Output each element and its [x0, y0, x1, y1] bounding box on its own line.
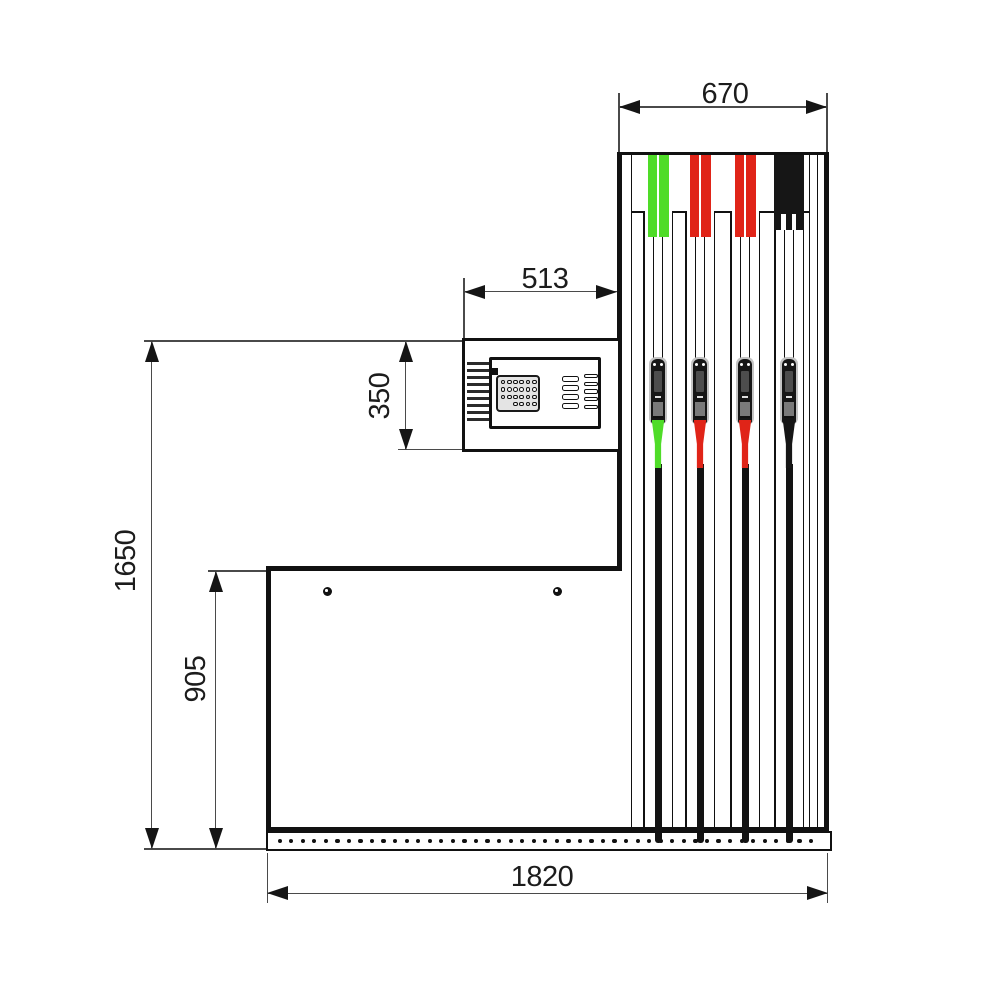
nozzle-grip-dash — [742, 396, 748, 399]
dim-1650-label: 1650 — [111, 506, 141, 616]
hose-cap-hose-4-black — [774, 155, 804, 230]
keypad-button — [507, 387, 512, 392]
keypad-button — [532, 402, 537, 407]
tower-cross-line — [759, 211, 774, 213]
plinth-dot — [347, 839, 351, 843]
tower-body — [617, 152, 829, 831]
dim-1650-arrow-down — [145, 828, 159, 849]
plinth-dot — [301, 839, 305, 843]
dim-513-label: 513 — [505, 264, 585, 294]
hose-line-hose-1-green — [653, 237, 654, 361]
hose-slot-line-hose-3-red — [730, 211, 732, 827]
head-vent-rib — [467, 411, 489, 414]
dim-1820-arrow-left — [267, 886, 288, 900]
dim-513-arrow-left — [464, 285, 485, 299]
tower-inner-line — [631, 155, 633, 827]
plinth-dot — [763, 839, 767, 843]
head-vent-rib — [467, 376, 489, 379]
nozzle-pivot-dot — [653, 363, 656, 366]
plinth-dot — [532, 839, 536, 843]
hose-cap-slot — [781, 214, 786, 230]
plinth-dot — [659, 839, 663, 843]
dim-905-arrow-down — [209, 828, 223, 849]
hose-line-hose-3-red — [740, 237, 741, 361]
keypad-button — [507, 395, 512, 400]
dim-670-arrow-right — [806, 100, 827, 114]
nozzle-pivot-dot — [784, 363, 787, 366]
plinth-dot — [428, 839, 432, 843]
display-slot — [562, 376, 580, 382]
display-grille-slot — [584, 389, 598, 393]
dim-350-label: 350 — [365, 351, 395, 441]
plinth-dot — [324, 839, 328, 843]
dim-905-line — [215, 571, 216, 849]
plinth-dot — [405, 839, 409, 843]
nozzle-pivot-dot — [791, 363, 794, 366]
hose-drop-hose-3-red — [742, 464, 749, 843]
drawing-canvas: 670 513 350 1650 905 1820 — [0, 0, 1000, 1000]
plinth-dot — [358, 839, 362, 843]
plinth-dot — [451, 839, 455, 843]
dim-905-arrow-up — [209, 571, 223, 592]
display-corner-block — [491, 368, 498, 375]
cabinet-body — [266, 566, 622, 827]
plinth-dot — [462, 839, 466, 843]
hose-slot-line-hose-2-red — [714, 211, 716, 827]
hose-slot-line-hose-4-black — [774, 211, 776, 827]
dim-905-label: 905 — [181, 634, 211, 724]
plinth-dot — [589, 839, 593, 843]
display-grille-slot — [584, 382, 598, 386]
plinth-dot — [786, 839, 790, 843]
keypad-button — [532, 387, 537, 392]
display-slot — [562, 394, 580, 400]
hose-line-hose-4-black — [784, 230, 785, 361]
dim-1650-line — [151, 341, 152, 849]
hose-line-hose-4-black — [793, 230, 794, 361]
nozzle-guard-block — [740, 402, 750, 418]
keypad-button — [513, 387, 518, 392]
display-grille-slot — [584, 397, 598, 401]
plinth-dot — [809, 839, 813, 843]
nozzle-pivot-dot — [660, 363, 663, 366]
nozzle-grip-inset — [785, 371, 793, 392]
nozzle-grip-dash — [697, 396, 703, 399]
dim-670-arrow-left — [619, 100, 640, 114]
nozzle-guard-block — [784, 402, 794, 418]
keypad-button — [532, 380, 537, 385]
plinth-dot — [797, 839, 801, 843]
hose-line-hose-3-red — [749, 237, 750, 361]
hose-slot-line-hose-4-black — [803, 211, 805, 827]
keypad-button — [519, 387, 524, 392]
cabinet-bolt-highlight — [555, 589, 558, 592]
head-vent-rib — [467, 397, 489, 400]
nozzle-guard-block — [695, 402, 705, 418]
dim-350-arrow-up — [399, 341, 413, 362]
tower-cross-line — [714, 211, 731, 213]
dim-1650-arrow-up — [145, 341, 159, 362]
plinth-dot — [335, 839, 339, 843]
dim-1820-label: 1820 — [497, 862, 587, 892]
hose-drop-hose-2-red — [697, 464, 704, 843]
plinth-dot — [509, 839, 513, 843]
keypad-button — [513, 395, 518, 400]
hose-slot-line-hose-2-red — [685, 211, 687, 827]
plinth-dot — [693, 839, 697, 843]
display-slot — [562, 403, 580, 409]
head-vent-rib — [467, 369, 489, 372]
keypad-button — [513, 402, 518, 407]
nozzle-pivot-dot — [702, 363, 705, 366]
keypad-button — [507, 380, 512, 385]
dim-670-label: 670 — [685, 79, 765, 109]
head-vent-rib — [467, 383, 489, 386]
dim-1820-arrow-right — [807, 886, 828, 900]
nozzle-guard-block — [653, 402, 663, 418]
nozzle-pivot-dot — [747, 363, 750, 366]
keypad-button — [501, 387, 506, 392]
plinth-dot — [381, 839, 385, 843]
plinth-dot — [555, 839, 559, 843]
head-vent-rib — [467, 390, 489, 393]
plinth-dot — [578, 839, 582, 843]
tower-inner-line — [809, 155, 811, 827]
dim-350-arrow-down — [399, 429, 413, 450]
head-vent-rib — [467, 418, 489, 421]
plinth-dot — [474, 839, 478, 843]
hose-line-hose-1-green — [662, 237, 663, 361]
hose-slot-line-hose-1-green — [643, 211, 645, 827]
keypad-button — [513, 380, 518, 385]
nozzle-grip-inset — [741, 371, 749, 392]
nozzle-grip-inset — [696, 371, 704, 392]
dim-1650-ext-top — [144, 340, 464, 341]
hose-cap-slot — [792, 214, 797, 230]
nozzle-grip-dash — [786, 396, 792, 399]
hose-slot-line-hose-1-green — [672, 211, 674, 827]
keypad-button — [532, 395, 537, 400]
plinth-dot — [682, 839, 686, 843]
cabinet-bolt-highlight — [325, 589, 328, 592]
dim-513-arrow-right — [596, 285, 617, 299]
plinth-dot — [716, 839, 720, 843]
display-grille-slot — [584, 374, 598, 378]
head-vent-rib — [467, 404, 489, 407]
head-vent-rib — [467, 362, 489, 365]
nozzle-grip-dash — [655, 396, 661, 399]
hose-cap-divider — [699, 155, 701, 237]
hose-line-hose-2-red — [704, 237, 705, 361]
hose-slot-line-hose-3-red — [759, 211, 761, 827]
plinth-dot — [485, 839, 489, 843]
plinth-dot — [278, 839, 282, 843]
tower-inner-line — [817, 155, 819, 827]
cabinet-bolt — [553, 587, 562, 596]
display-slot — [562, 385, 580, 391]
hose-cap-divider — [657, 155, 659, 237]
nozzle-pivot-dot — [695, 363, 698, 366]
plinth-dot — [612, 839, 616, 843]
plinth-dot — [566, 839, 570, 843]
display-grille-slot — [584, 405, 598, 409]
hose-cap-divider — [744, 155, 746, 237]
nozzle-grip-inset — [654, 371, 662, 392]
hose-drop-hose-1-green — [655, 464, 662, 843]
dim-1650-ext-bottom — [144, 848, 267, 849]
plinth-dot — [740, 839, 744, 843]
plinth-dot — [636, 839, 640, 843]
nozzle-pivot-dot — [740, 363, 743, 366]
cabinet-bolt — [323, 587, 332, 596]
plinth-dot — [705, 839, 709, 843]
hose-line-hose-2-red — [695, 237, 696, 361]
hose-drop-hose-4-black — [786, 464, 793, 843]
tower-cross-line — [672, 211, 686, 213]
tower-cross-line — [804, 211, 810, 213]
